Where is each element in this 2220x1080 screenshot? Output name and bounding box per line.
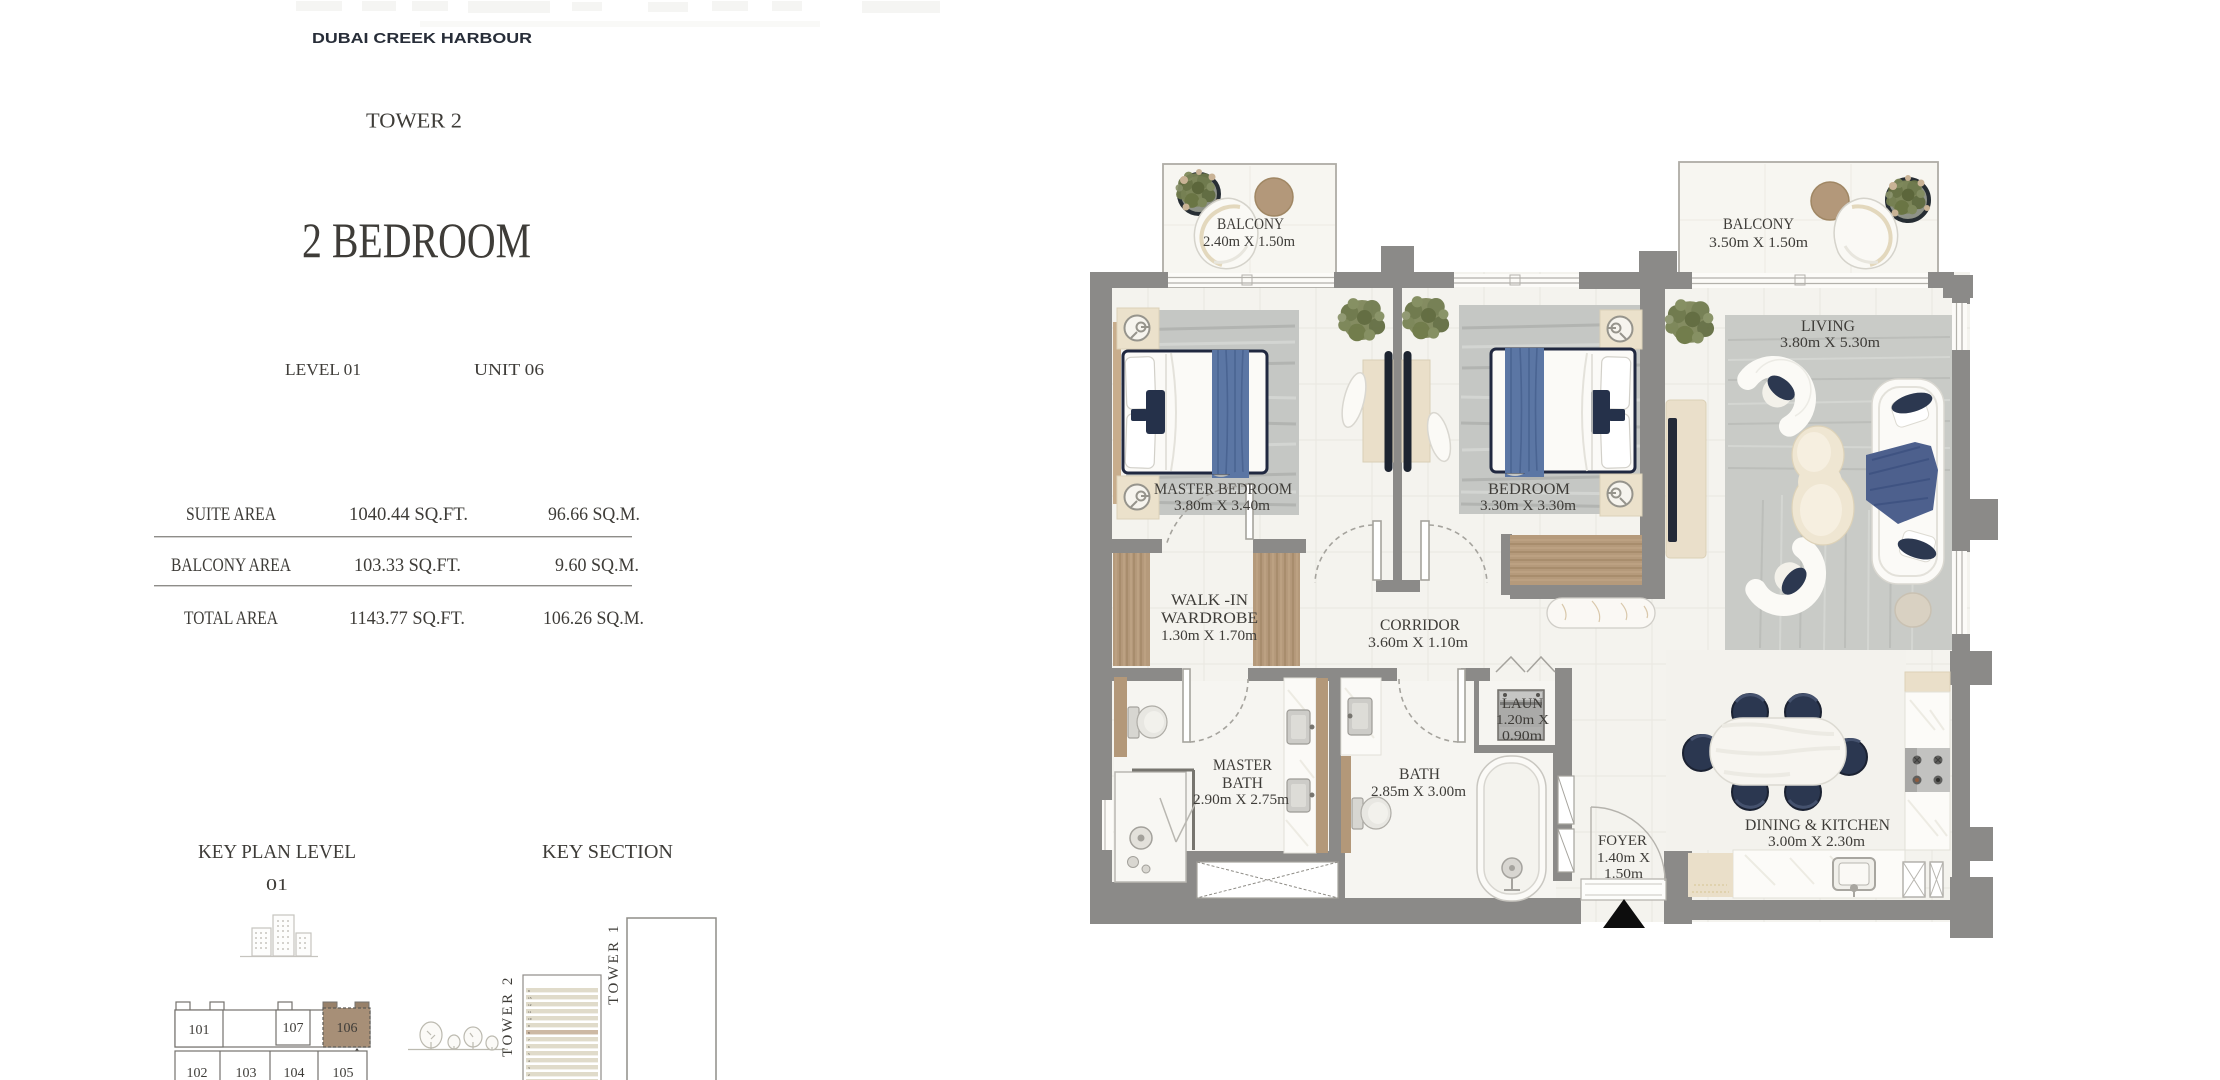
svg-text:10: 10 [528, 1017, 532, 1021]
svg-text:BATH: BATH [1222, 775, 1263, 792]
svg-text:TOTAL AREA: TOTAL AREA [184, 608, 278, 629]
svg-text:106: 106 [337, 1021, 358, 1036]
svg-text:TOWER 2: TOWER 2 [366, 109, 462, 133]
svg-text:107: 107 [283, 1021, 304, 1036]
svg-text:CORRIDOR: CORRIDOR [1380, 617, 1460, 634]
svg-text:3.80m X 3.40m: 3.80m X 3.40m [1174, 498, 1270, 514]
svg-text:103.33 SQ.FT.: 103.33 SQ.FT. [354, 555, 461, 576]
svg-text:WARDROBE: WARDROBE [1161, 610, 1258, 627]
svg-text:KEY PLAN LEVEL: KEY PLAN LEVEL [198, 842, 356, 863]
svg-text:4: 4 [528, 1059, 530, 1063]
svg-text:1.50m: 1.50m [1604, 867, 1643, 882]
svg-text:105: 105 [333, 1066, 354, 1080]
svg-text:2.85m X 3.00m: 2.85m X 3.00m [1371, 784, 1466, 800]
svg-text:BALCONY: BALCONY [1723, 216, 1794, 233]
svg-text:104: 104 [284, 1066, 305, 1080]
svg-text:FOYER: FOYER [1598, 833, 1647, 849]
svg-text:1143.77 SQ.FT.: 1143.77 SQ.FT. [349, 608, 465, 629]
svg-text:2: 2 [528, 1073, 530, 1077]
svg-text:1.40m X: 1.40m X [1597, 851, 1650, 866]
svg-text:9: 9 [528, 989, 530, 993]
svg-text:3.80m X 5.30m: 3.80m X 5.30m [1780, 335, 1880, 351]
svg-text:LEVEL 01: LEVEL 01 [285, 360, 361, 379]
svg-text:0.90m: 0.90m [1502, 729, 1542, 744]
svg-text:3.60m X 1.10m: 3.60m X 1.10m [1368, 635, 1468, 651]
svg-text:2.90m X 2.75m: 2.90m X 2.75m [1193, 792, 1289, 808]
svg-text:TOWER 1: TOWER 1 [606, 923, 622, 1005]
svg-text:103: 103 [236, 1066, 257, 1080]
svg-text:BEDROOM: BEDROOM [1488, 481, 1570, 498]
svg-text:1.30m X 1.70m: 1.30m X 1.70m [1161, 628, 1257, 644]
svg-text:MASTER: MASTER [1213, 757, 1272, 774]
svg-text:2.40m X 1.50m: 2.40m X 1.50m [1203, 234, 1295, 250]
svg-text:MASTER BEDROOM: MASTER BEDROOM [1154, 481, 1292, 498]
svg-text:LAUN: LAUN [1502, 696, 1543, 712]
svg-text:96.66 SQ.M.: 96.66 SQ.M. [548, 504, 640, 525]
svg-text:106.26 SQ.M.: 106.26 SQ.M. [543, 608, 644, 629]
svg-text:101: 101 [189, 1023, 210, 1038]
svg-text:UNIT 06: UNIT 06 [474, 360, 544, 379]
svg-text:01: 01 [266, 875, 288, 894]
svg-text:LIVING: LIVING [1801, 318, 1855, 335]
svg-text:7: 7 [528, 1038, 530, 1042]
svg-text:3: 3 [528, 1066, 530, 1070]
svg-text:SUITE AREA: SUITE AREA [186, 504, 276, 525]
svg-text:BALCONY AREA: BALCONY AREA [171, 555, 291, 576]
svg-text:2 BEDROOM: 2 BEDROOM [302, 212, 531, 268]
svg-text:6: 6 [528, 1045, 530, 1049]
svg-text:102: 102 [187, 1066, 208, 1080]
svg-text:TOWER 2: TOWER 2 [500, 975, 516, 1057]
svg-text:9: 9 [528, 1024, 530, 1028]
svg-text:BATH: BATH [1399, 766, 1440, 783]
svg-text:BALCONY: BALCONY [1217, 216, 1284, 233]
svg-text:DINING & KITCHEN: DINING & KITCHEN [1745, 817, 1890, 834]
svg-text:DUBAI CREEK HARBOUR: DUBAI CREEK HARBOUR [312, 31, 533, 47]
svg-text:13: 13 [528, 996, 532, 1000]
svg-text:1.20m X: 1.20m X [1496, 713, 1549, 728]
svg-text:9.60 SQ.M.: 9.60 SQ.M. [555, 555, 639, 576]
svg-text:11: 11 [528, 1010, 532, 1014]
svg-text:WALK -IN: WALK -IN [1171, 592, 1248, 609]
svg-text:3.50m X 1.50m: 3.50m X 1.50m [1709, 235, 1808, 251]
svg-text:3.30m X 3.30m: 3.30m X 3.30m [1480, 498, 1576, 514]
svg-text:8: 8 [528, 1031, 530, 1035]
svg-text:5: 5 [528, 1052, 530, 1056]
svg-text:3.00m X 2.30m: 3.00m X 2.30m [1768, 834, 1865, 850]
svg-text:1040.44 SQ.FT.: 1040.44 SQ.FT. [349, 504, 468, 525]
svg-text:12: 12 [528, 1003, 532, 1007]
svg-text:KEY SECTION: KEY SECTION [542, 842, 673, 863]
